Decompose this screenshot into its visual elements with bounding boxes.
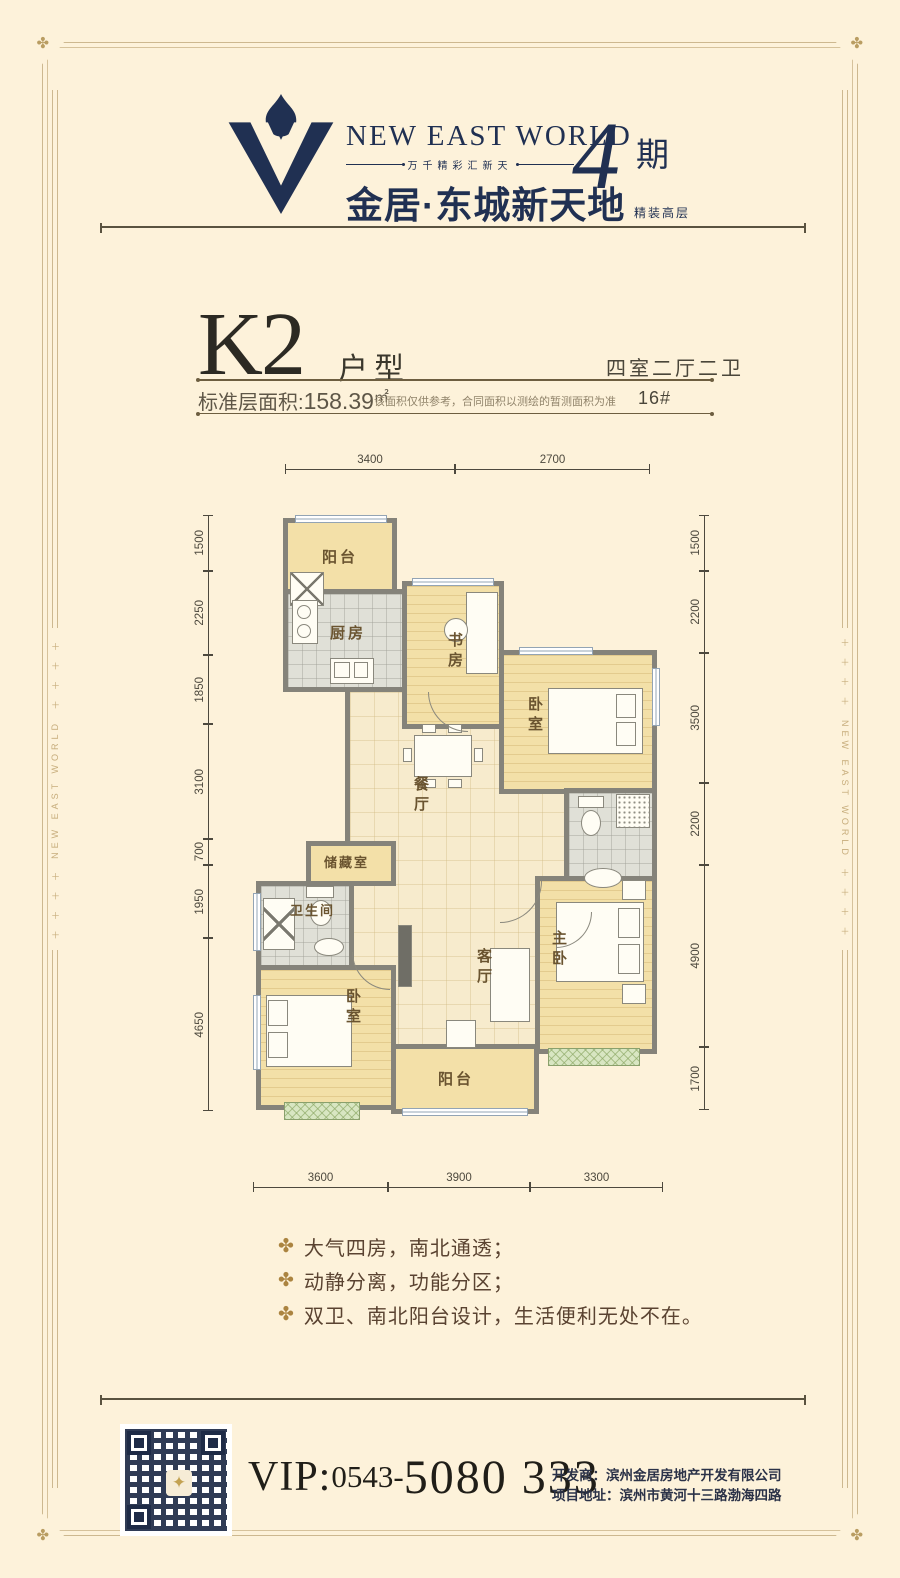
sofa-icon [490, 948, 530, 1022]
brand-tagline: 万千精彩汇新天 [404, 157, 517, 172]
shower-icon [616, 794, 650, 828]
plus-marks: ＋ ＋ ＋ ＋ [49, 868, 62, 940]
feature-text: 动静分离，功能分区； [304, 1266, 514, 1295]
room-label-master: 主卧 [548, 930, 569, 970]
vip-label: VIP: [248, 1453, 331, 1501]
sink-basin-icon [334, 662, 350, 678]
dim-right-5: 4900 [688, 865, 705, 1047]
room-label-balcony-north: 阳台 [322, 546, 358, 567]
plus-marks: ＋ ＋ ＋ ＋ [839, 868, 852, 940]
room-label-dining: 餐厅 [410, 776, 431, 816]
tagline-dash [346, 164, 404, 165]
plan-code-title: K2 [198, 300, 304, 390]
window [253, 893, 261, 951]
header-divider [100, 226, 806, 228]
wash-basin-icon [314, 938, 344, 956]
nightstand-icon [622, 984, 646, 1004]
dim-right-2: 2200 [688, 571, 705, 653]
feature-text: 大气四房，南北通透； [304, 1232, 514, 1261]
rooms-summary: 四室二厅二卫 [606, 352, 744, 381]
ornament-line [842, 90, 848, 628]
armchair-icon [446, 1020, 476, 1048]
area-row: 标准层面积:158.39㎡ [198, 386, 389, 415]
qr-finder-icon [127, 1505, 151, 1529]
area-disclaimer: 该面积仅供参考，合同面积以测绘的暂测面积为准 [374, 393, 616, 409]
dim-right-6: 1700 [688, 1047, 705, 1110]
chair-icon [448, 779, 462, 788]
area-label: 标准层面积: [198, 392, 304, 414]
qr-center-logo-icon: ✦ [166, 1470, 192, 1496]
window [652, 668, 660, 726]
dim-top-2: 2700 [455, 450, 650, 470]
phase-label: 期 [636, 128, 669, 176]
footer-divider [100, 1398, 806, 1400]
phase-number: 4 [572, 108, 620, 204]
chair-icon [422, 724, 436, 733]
pillow-icon [268, 1032, 288, 1058]
window [519, 647, 593, 655]
title-rule [198, 379, 712, 381]
dim-right-3: 3500 [688, 653, 705, 783]
pillow-icon [618, 908, 640, 938]
phone-area-code: 0543- [331, 1459, 403, 1495]
pillow-icon [268, 1000, 288, 1026]
vip-phone: VIP:0543-5080 333 [248, 1440, 600, 1514]
dim-right-1: 1500 [688, 515, 705, 571]
burner-icon [297, 624, 311, 638]
chair-icon [474, 748, 483, 762]
chair-icon [403, 748, 412, 762]
bay-window [284, 1102, 360, 1120]
desk-icon [466, 592, 498, 674]
room-label-kitchen: 厨房 [330, 622, 366, 643]
nightstand-icon [622, 880, 646, 900]
ornament-line [842, 950, 848, 1488]
window [295, 515, 387, 523]
room-label-living: 客厅 [473, 948, 494, 988]
pillow-icon [618, 944, 640, 974]
wash-basin-icon [584, 868, 622, 888]
dim-left-4: 3100 [192, 724, 209, 839]
toilet-bowl-icon [581, 810, 601, 836]
building-number: 16# [638, 388, 671, 409]
room-label-bedroom-sw: 卧室 [342, 988, 363, 1028]
room-label-bathroom-main: 卫生间 [290, 900, 335, 919]
clover-bullet-icon: ✤ [278, 1305, 294, 1324]
tagline-dash [517, 164, 575, 165]
dim-left-1: 1500 [192, 515, 209, 571]
title-rule-2 [198, 413, 712, 414]
feature-item: ✤ 动静分离，功能分区； [278, 1266, 514, 1295]
window [402, 1108, 528, 1116]
plus-marks: ＋ ＋ ＋ ＋ [839, 638, 852, 710]
dim-bottom-1: 3600 [253, 1168, 388, 1188]
qr-code: ✦ [120, 1424, 232, 1536]
dim-right-4: 2200 [688, 783, 705, 865]
window [253, 995, 261, 1070]
feature-item: ✤ 双卫、南北阳台设计，生活便利无处不在。 [278, 1300, 703, 1329]
pillow-icon [616, 722, 636, 746]
toilet-tank-icon [578, 796, 604, 808]
dining-table-icon [414, 735, 472, 777]
developer-info: 开发商：滨州金居房地产开发有限公司 项目地址：滨州市黄河十三路渤海四路 [552, 1466, 782, 1506]
room-label-storage: 储藏室 [324, 852, 369, 871]
clover-bullet-icon: ✤ [278, 1271, 294, 1290]
dim-left-2: 2250 [192, 571, 209, 655]
dim-bottom-2: 3900 [388, 1168, 530, 1188]
plan-type-label: 户型 [338, 344, 410, 388]
side-brand-text: NEW EAST WORLD [50, 720, 60, 859]
dim-left-6: 1950 [192, 865, 209, 938]
clover-bullet-icon: ✤ [278, 1237, 294, 1256]
side-brand-text: NEW EAST WORLD [840, 720, 850, 859]
brand-tagline-row: 万千精彩汇新天 [346, 157, 574, 172]
feature-item: ✤ 大气四房，南北通透； [278, 1232, 514, 1261]
window [412, 578, 494, 586]
poster-page: ✤ ✤ ✤ ✤ ＋ ＋ ＋ ＋ NEW EAST WORLD ＋ ＋ ＋ ＋ ＋… [0, 0, 900, 1578]
dim-left-5: 700 [192, 839, 209, 865]
developer-line: 开发商：滨州金居房地产开发有限公司 [552, 1466, 782, 1486]
room-label-study: 书房 [444, 632, 465, 672]
ornament-line [52, 90, 58, 628]
address-line: 项目地址：滨州市黄河十三路渤海四路 [552, 1486, 782, 1506]
left-side-ornament: ＋ ＋ ＋ ＋ NEW EAST WORLD ＋ ＋ ＋ ＋ [45, 90, 65, 1488]
dim-left-7: 4650 [192, 938, 209, 1111]
toilet-tank-icon [306, 886, 334, 898]
feature-text: 双卫、南北阳台设计，生活便利无处不在。 [304, 1300, 703, 1329]
dim-top-1: 3400 [285, 450, 455, 470]
qr-finder-icon [201, 1431, 225, 1455]
pillow-icon [616, 694, 636, 718]
dim-bottom-3: 3300 [530, 1168, 663, 1188]
dim-left-3: 1850 [192, 655, 209, 724]
qr-finder-icon [127, 1431, 151, 1455]
right-side-ornament: ＋ ＋ ＋ ＋ NEW EAST WORLD ＋ ＋ ＋ ＋ [835, 90, 855, 1488]
room-label-bedroom-ne: 卧室 [524, 696, 545, 736]
brand-logo-icon [226, 94, 336, 214]
room-label-balcony-south: 阳台 [438, 1068, 474, 1089]
plus-marks: ＋ ＋ ＋ ＋ [49, 638, 62, 710]
phase-subtitle: 精装高层 [634, 204, 690, 221]
sink-basin-icon [354, 662, 368, 678]
area-value: 158.39 [304, 388, 374, 414]
tv-cabinet-icon [398, 925, 412, 987]
burner-icon [297, 605, 311, 619]
bay-window [548, 1048, 640, 1066]
ornament-line [52, 950, 58, 1488]
